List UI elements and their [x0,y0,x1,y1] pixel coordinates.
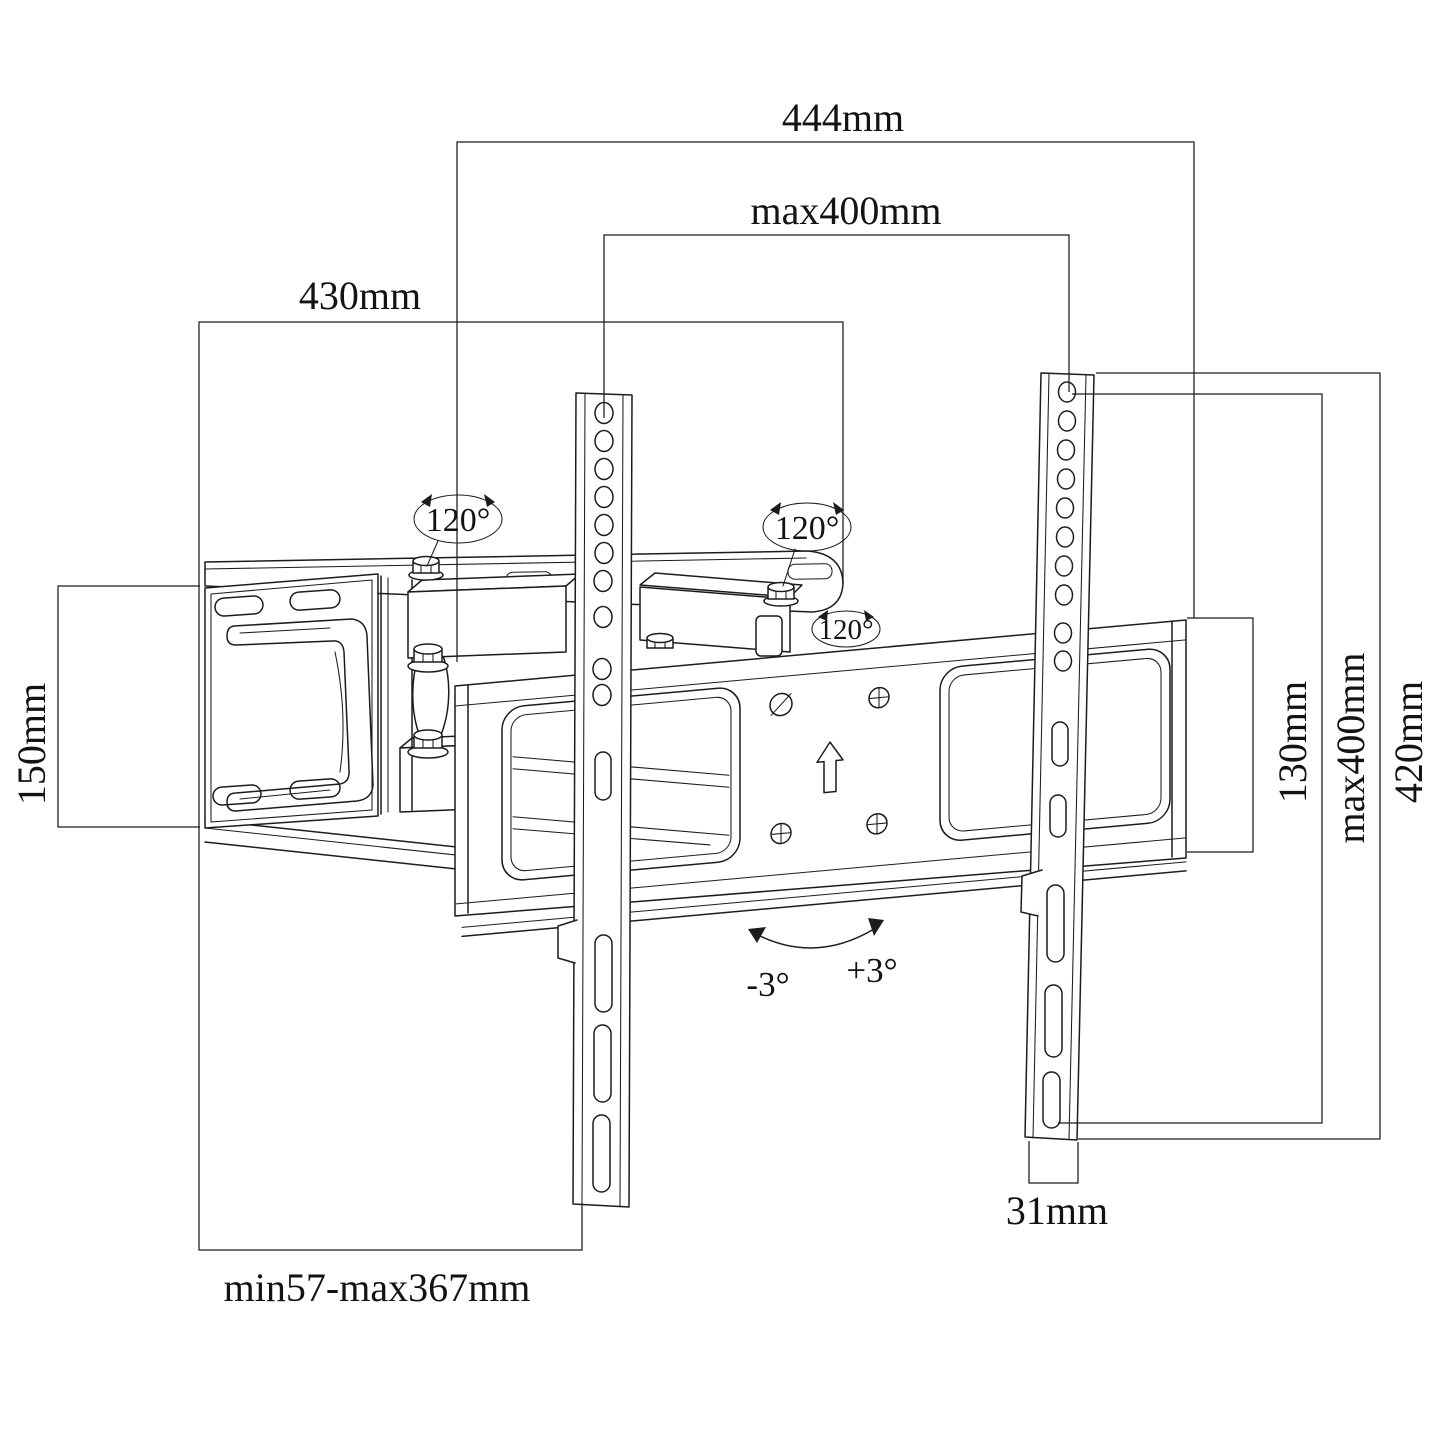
rail-hook [558,920,577,963]
tv-mount-dimension-diagram: 444mm max400mm 430mm 150mm min57-max367m… [0,0,1440,1440]
elbow-block [756,616,782,656]
dim-line-130 [1187,618,1253,852]
dim-31mm-label: 31mm [1006,1188,1108,1233]
swivel-120-label-1: 120° [426,502,491,539]
dim-444mm-label: 444mm [782,95,904,140]
dim-max400mm-right-label: max400mm [1328,652,1373,843]
bolt-hinge-top [408,644,448,672]
bolt-arm-right [764,583,798,607]
bolt-hinge-bottom [408,730,448,758]
tilt-neg-label: -3° [746,965,789,1004]
dim-130mm-label: 130mm [1270,681,1315,803]
swivel-120-label-3: 120° [818,614,873,646]
dim-line-31 [1029,1141,1078,1183]
dim-min-max-label: min57-max367mm [224,1265,531,1310]
bolt-top-left [409,557,443,581]
swivel-120-label-2: 120° [775,510,840,547]
tilt-pos-label: +3° [846,951,897,990]
dim-420mm-label: 420mm [1386,681,1431,803]
dim-150mm-label: 150mm [9,683,54,805]
dim-line-max400-top [604,235,1069,418]
dim-line-150 [58,586,200,827]
diagram-svg: 444mm max400mm 430mm 150mm min57-max367m… [0,0,1440,1440]
bolt-elbow [647,634,673,649]
tilt-annotation [748,918,884,948]
dim-430mm-label: 430mm [299,273,421,318]
dim-max400mm-top-label: max400mm [750,188,941,233]
wall-plate [205,574,412,828]
